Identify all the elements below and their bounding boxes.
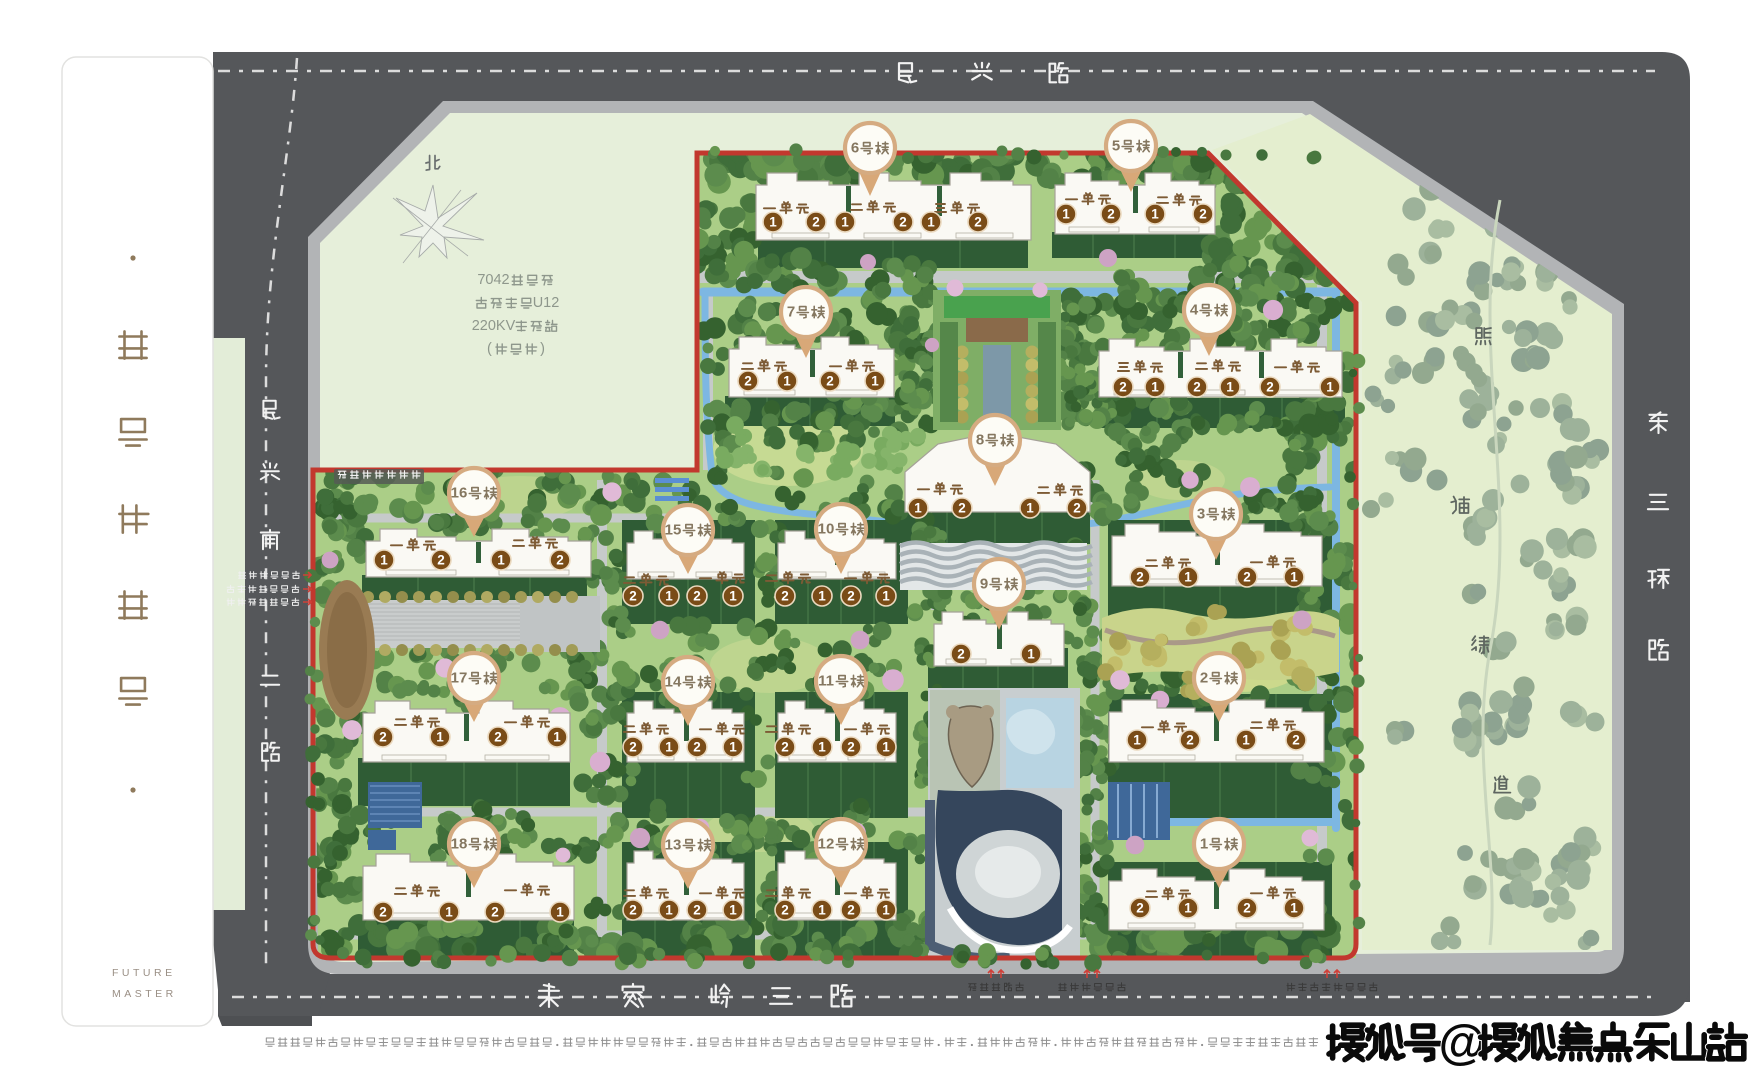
- svg-text:10: 10: [818, 521, 835, 538]
- svg-text:2: 2: [1136, 901, 1144, 916]
- svg-text:2: 2: [847, 903, 855, 918]
- svg-text:6: 6: [851, 140, 859, 157]
- svg-text:1: 1: [729, 740, 737, 755]
- svg-text:1: 1: [1290, 901, 1298, 916]
- svg-text:1: 1: [1290, 570, 1298, 585]
- svg-text:2: 2: [812, 215, 820, 230]
- svg-text:16: 16: [451, 485, 468, 502]
- svg-text:FUTURE: FUTURE: [112, 967, 176, 979]
- svg-text:2: 2: [1199, 207, 1207, 222]
- svg-text:2: 2: [629, 903, 637, 918]
- svg-text:1: 1: [871, 374, 879, 389]
- svg-text:1: 1: [914, 501, 922, 516]
- svg-text:2: 2: [1193, 380, 1201, 395]
- svg-text:1: 1: [380, 553, 388, 568]
- svg-text:1: 1: [1200, 836, 1208, 853]
- svg-text:15: 15: [665, 522, 682, 539]
- svg-text:1: 1: [818, 740, 826, 755]
- svg-text:14: 14: [665, 674, 682, 691]
- svg-text:1: 1: [1242, 733, 1250, 748]
- svg-text:1: 1: [882, 903, 890, 918]
- svg-text:1: 1: [1026, 501, 1034, 516]
- svg-text:2: 2: [1266, 380, 1274, 395]
- svg-text:2: 2: [1243, 901, 1251, 916]
- svg-text:13: 13: [665, 837, 682, 854]
- svg-text:2: 2: [826, 374, 834, 389]
- svg-text:2: 2: [1200, 670, 1208, 687]
- svg-text:2: 2: [1186, 733, 1194, 748]
- svg-text:2: 2: [847, 589, 855, 604]
- svg-text:1: 1: [1062, 207, 1070, 222]
- svg-text:1: 1: [553, 730, 561, 745]
- svg-text:220KV: 220KV: [472, 318, 516, 334]
- svg-text:4: 4: [1190, 302, 1199, 319]
- svg-text:2: 2: [379, 730, 387, 745]
- svg-text:1: 1: [769, 215, 777, 230]
- svg-text:1: 1: [783, 374, 791, 389]
- svg-text:11: 11: [818, 673, 834, 690]
- svg-text:2: 2: [629, 740, 637, 755]
- svg-text:U12: U12: [533, 295, 560, 311]
- svg-text:2: 2: [957, 647, 965, 662]
- svg-text:2: 2: [974, 215, 982, 230]
- svg-text:2: 2: [958, 501, 966, 516]
- svg-text:2: 2: [1243, 570, 1251, 585]
- svg-text:2: 2: [781, 903, 789, 918]
- svg-text:2: 2: [1073, 501, 1081, 516]
- svg-text:7: 7: [787, 304, 795, 321]
- svg-text:1: 1: [841, 215, 849, 230]
- svg-text:1: 1: [556, 905, 564, 920]
- svg-text:): ): [540, 341, 545, 357]
- svg-text:1: 1: [882, 740, 890, 755]
- svg-text:18: 18: [451, 836, 468, 853]
- svg-text:8: 8: [976, 432, 984, 449]
- svg-text:2: 2: [379, 905, 387, 920]
- svg-text:5: 5: [1112, 138, 1120, 155]
- svg-text:1: 1: [665, 740, 673, 755]
- svg-text:1: 1: [665, 589, 673, 604]
- svg-text:1: 1: [729, 589, 737, 604]
- svg-text:2: 2: [1136, 570, 1144, 585]
- svg-text:1: 1: [818, 903, 826, 918]
- svg-text:1: 1: [1133, 733, 1141, 748]
- svg-text:MASTER: MASTER: [112, 988, 177, 1000]
- svg-text:2: 2: [629, 589, 637, 604]
- svg-text:9: 9: [980, 576, 988, 593]
- svg-text:2: 2: [693, 903, 701, 918]
- svg-text:1: 1: [1326, 380, 1334, 395]
- svg-text:2: 2: [1119, 380, 1127, 395]
- svg-text:1: 1: [927, 215, 935, 230]
- svg-text:1: 1: [1184, 570, 1192, 585]
- svg-text:2: 2: [1107, 207, 1115, 222]
- svg-text:1: 1: [818, 589, 826, 604]
- svg-text:1: 1: [1184, 901, 1192, 916]
- svg-text:@: @: [1439, 1017, 1486, 1070]
- svg-text:2: 2: [899, 215, 907, 230]
- svg-text:1: 1: [882, 589, 890, 604]
- svg-text:2: 2: [781, 589, 789, 604]
- svg-text:3: 3: [1197, 506, 1205, 523]
- svg-text:2: 2: [781, 740, 789, 755]
- svg-text:1: 1: [497, 553, 505, 568]
- svg-text:12: 12: [818, 836, 835, 853]
- svg-text:1: 1: [1151, 380, 1159, 395]
- svg-text:1: 1: [1151, 207, 1159, 222]
- svg-text:1: 1: [445, 905, 453, 920]
- svg-text:2: 2: [491, 905, 499, 920]
- svg-text:1: 1: [436, 730, 444, 745]
- svg-text:2: 2: [693, 589, 701, 604]
- svg-text:2: 2: [1292, 733, 1300, 748]
- svg-text:1: 1: [1226, 380, 1234, 395]
- svg-text:2: 2: [693, 740, 701, 755]
- svg-text:1: 1: [729, 903, 737, 918]
- svg-text:17: 17: [451, 670, 468, 687]
- svg-text:1: 1: [665, 903, 673, 918]
- svg-text:7042: 7042: [477, 272, 509, 288]
- svg-text:2: 2: [437, 553, 445, 568]
- svg-text:2: 2: [556, 553, 564, 568]
- svg-text:2: 2: [847, 740, 855, 755]
- svg-text:2: 2: [744, 374, 752, 389]
- svg-text:2: 2: [494, 730, 502, 745]
- svg-text:(: (: [487, 341, 492, 357]
- svg-text:1: 1: [1027, 647, 1035, 662]
